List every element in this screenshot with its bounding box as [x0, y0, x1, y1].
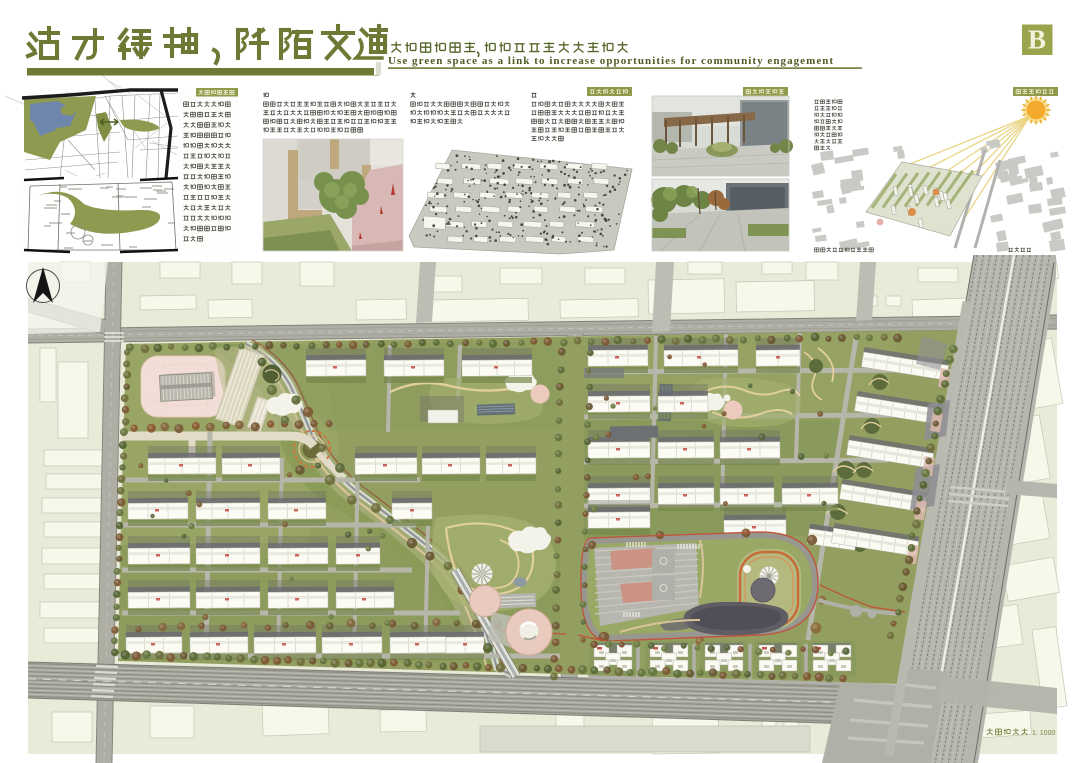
svg-text:1: 1000: 1: 1000 — [1032, 730, 1055, 737]
svg-text:B: B — [1028, 25, 1046, 55]
svg-text:Use green space as a link to i: Use green space as a link to increase op… — [388, 55, 834, 67]
